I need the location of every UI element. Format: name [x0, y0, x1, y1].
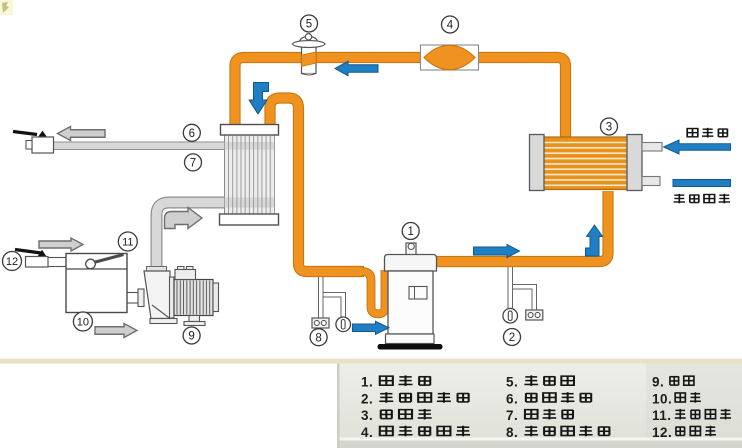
svg-text:11: 11	[122, 236, 133, 248]
svg-text:4: 4	[447, 20, 454, 32]
svg-text:10: 10	[77, 316, 89, 328]
svg-text:1: 1	[407, 226, 413, 238]
svg-text:8.: 8.	[506, 425, 518, 440]
svg-text:4.: 4.	[361, 425, 373, 440]
svg-text:9: 9	[188, 331, 194, 343]
svg-text:6: 6	[189, 128, 195, 140]
svg-text:9.: 9.	[652, 375, 664, 390]
svg-text:3: 3	[606, 122, 612, 134]
svg-text:10.: 10.	[652, 391, 672, 406]
svg-text:5: 5	[306, 19, 312, 31]
svg-text:6.: 6.	[506, 391, 518, 406]
svg-text:7: 7	[190, 158, 196, 170]
svg-text:5.: 5.	[506, 375, 518, 390]
svg-text:2.: 2.	[361, 391, 373, 406]
svg-text:7.: 7.	[506, 408, 518, 423]
svg-text:11.: 11.	[652, 408, 672, 423]
svg-text:2: 2	[509, 332, 515, 344]
svg-text:8: 8	[315, 332, 321, 344]
svg-text:1.: 1.	[361, 375, 373, 390]
svg-text:3.: 3.	[361, 408, 373, 423]
svg-text:12: 12	[6, 256, 18, 268]
svg-text:12.: 12.	[652, 425, 672, 440]
